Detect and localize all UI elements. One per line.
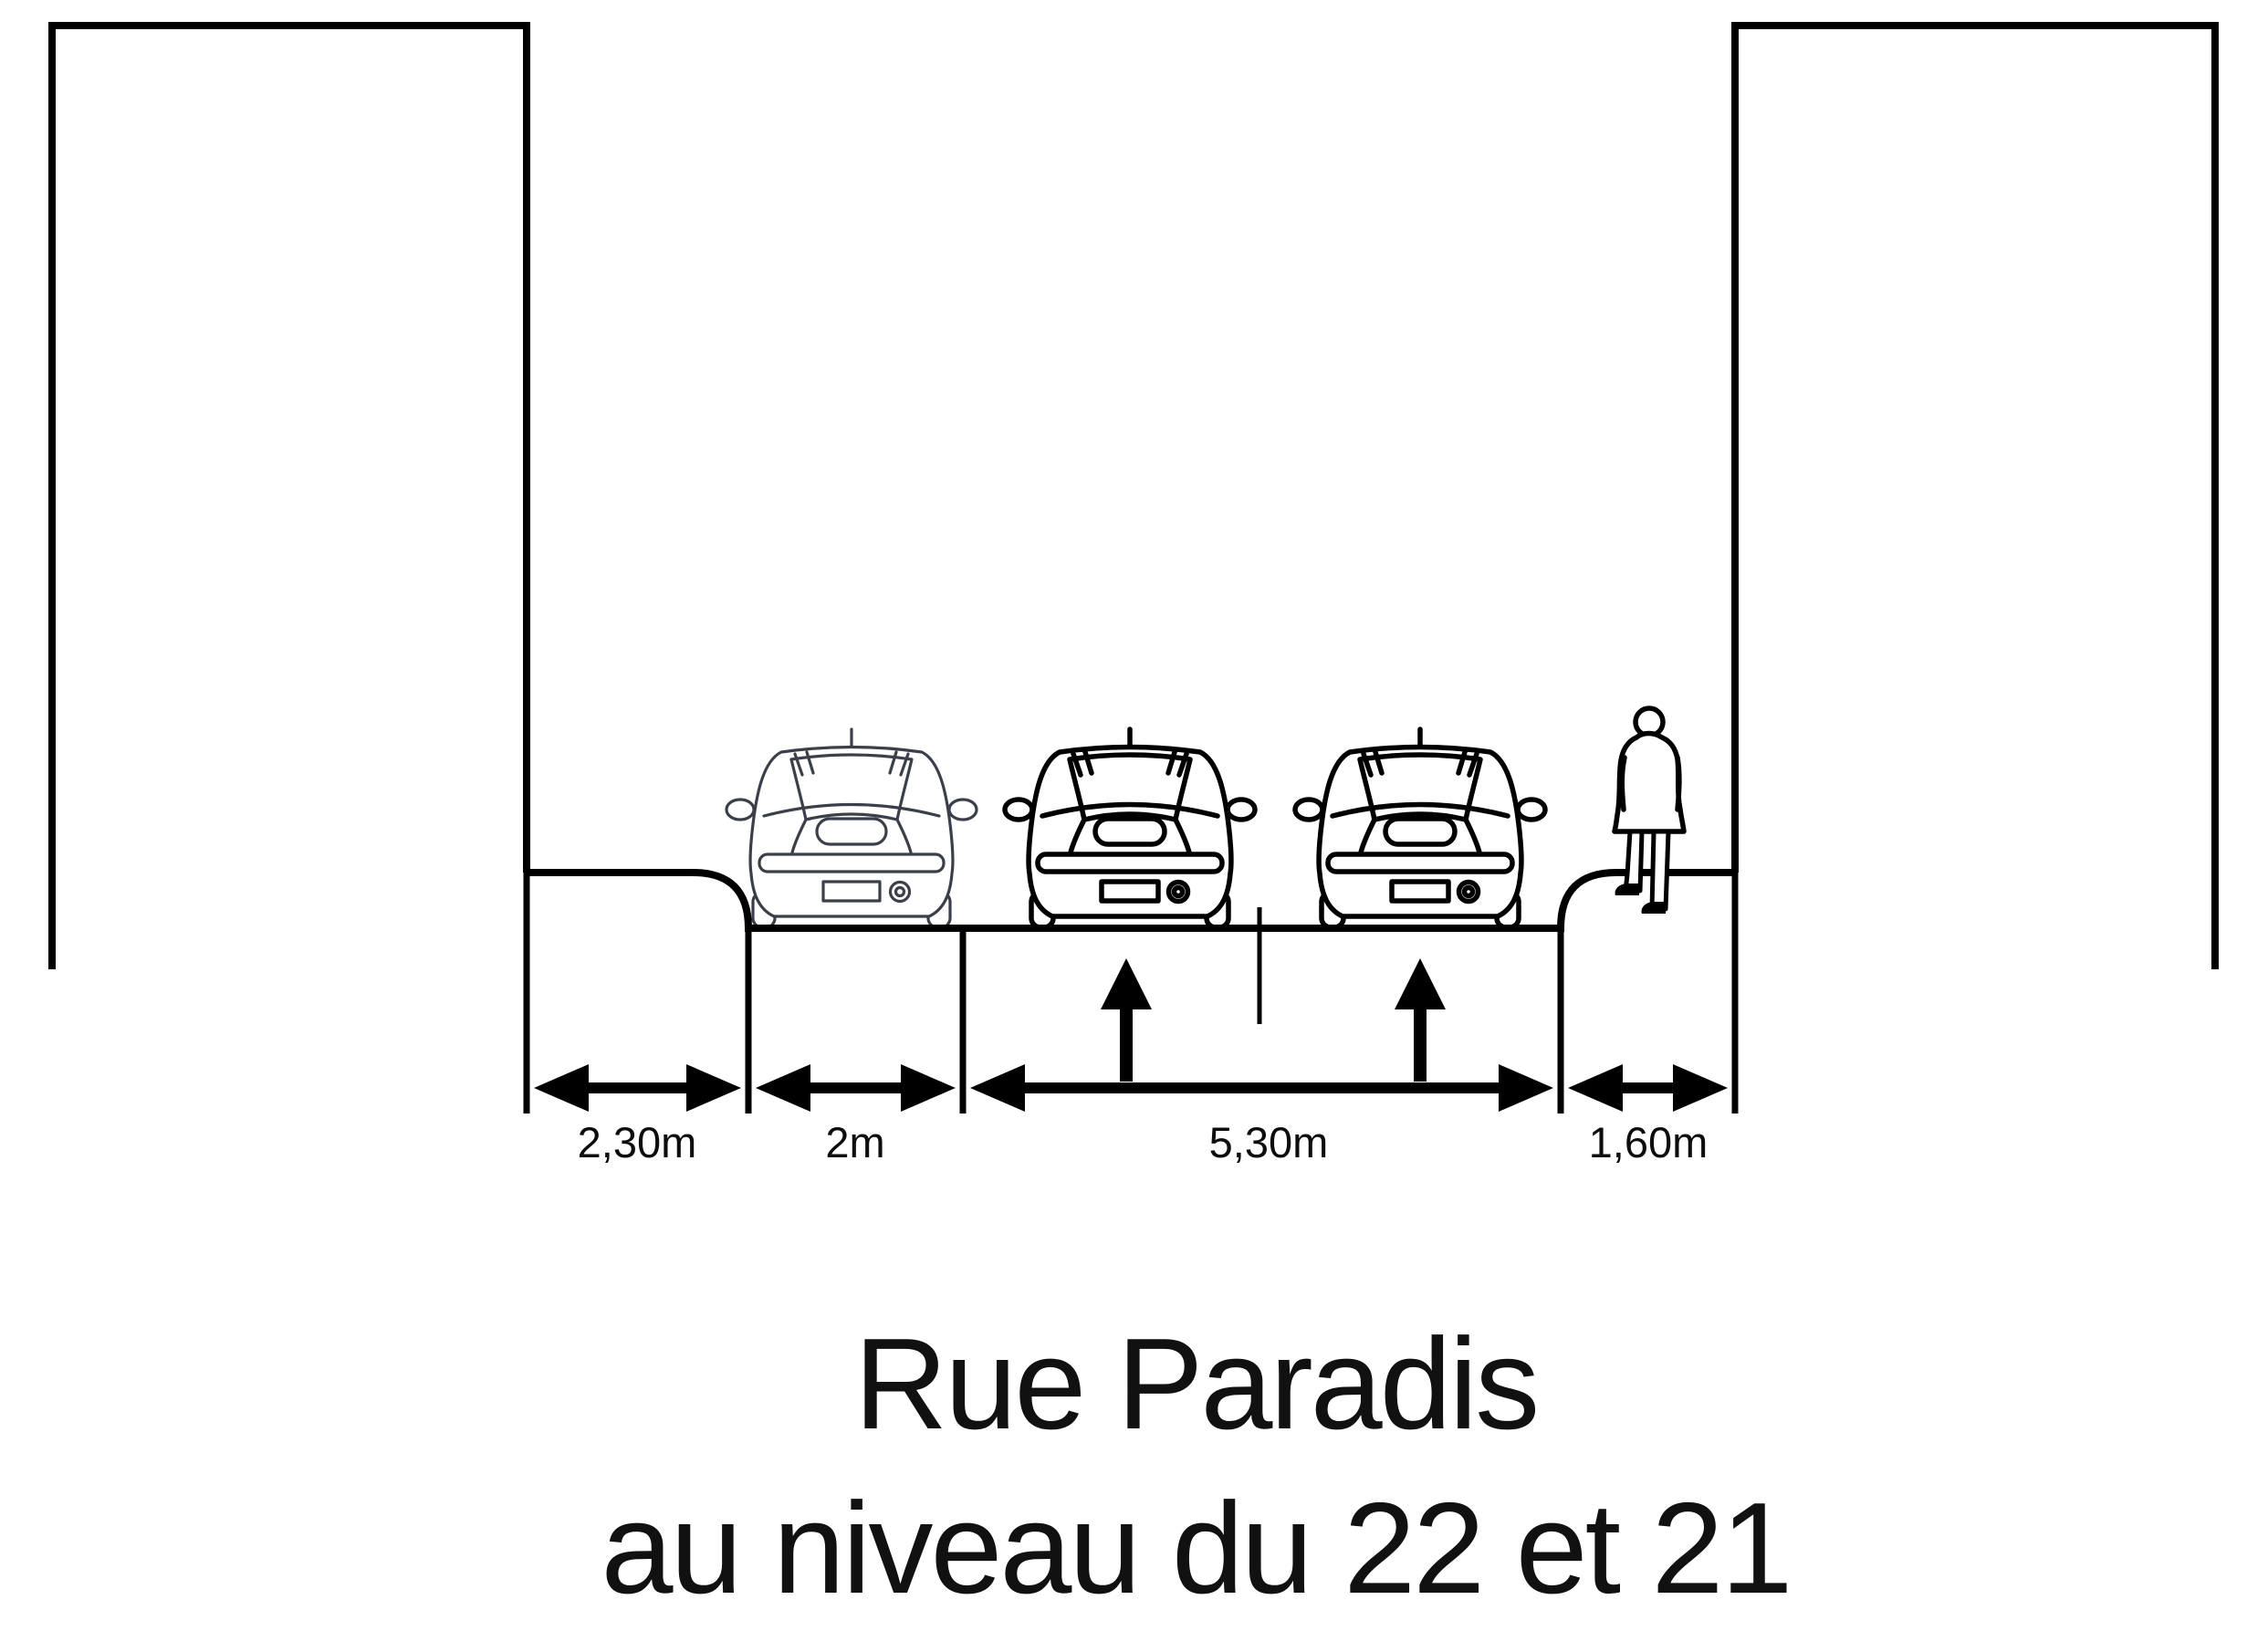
title-line-2: au niveau du 22 et 21: [601, 1476, 1791, 1621]
dimension-arrow-left-sidewalk: [534, 1064, 741, 1112]
dimension-label-left-sidewalk: 2,30m: [578, 1118, 697, 1166]
dimension-label-right-sidewalk: 1,60m: [1589, 1118, 1709, 1166]
pedestrian-right-shoe: [1642, 902, 1666, 914]
pedestrian-right-leg: [1652, 831, 1668, 909]
pedestrian: [1615, 708, 1684, 914]
pedestrian-coat: [1615, 734, 1684, 832]
title-line-1: Rue Paradis: [854, 1312, 1537, 1457]
left-building: [52, 26, 527, 969]
street-cross-section-diagram: 2,30m 2m 5,30m 1,60m Rue Paradis au nive…: [0, 0, 2268, 1652]
dimension-arrow-right-sidewalk: [1568, 1064, 1728, 1112]
traffic-direction-arrows: [1101, 958, 1446, 1082]
dimension-label-roadway: 5,30m: [1209, 1118, 1329, 1166]
moving-car-1: [1005, 729, 1255, 927]
dimension-arrow-roadway: [970, 1064, 1553, 1112]
pedestrian-left-leg: [1625, 831, 1642, 891]
dimension-label-parking-lane: 2m: [825, 1118, 884, 1166]
dimension-arrow-parking-lane: [756, 1064, 956, 1112]
right-building-outline: [1735, 26, 2215, 969]
direction-arrow-up-lane-1: [1101, 958, 1152, 1082]
parked-car: [726, 729, 977, 927]
left-building-outline: [52, 26, 527, 969]
right-building: [1735, 26, 2215, 969]
rue-paradis-cross-section-page: 2,30m 2m 5,30m 1,60m Rue Paradis au nive…: [0, 0, 2268, 1652]
moving-car-2: [1295, 729, 1545, 927]
direction-arrow-up-lane-2: [1395, 958, 1446, 1082]
pedestrian-left-shoe: [1615, 884, 1639, 895]
